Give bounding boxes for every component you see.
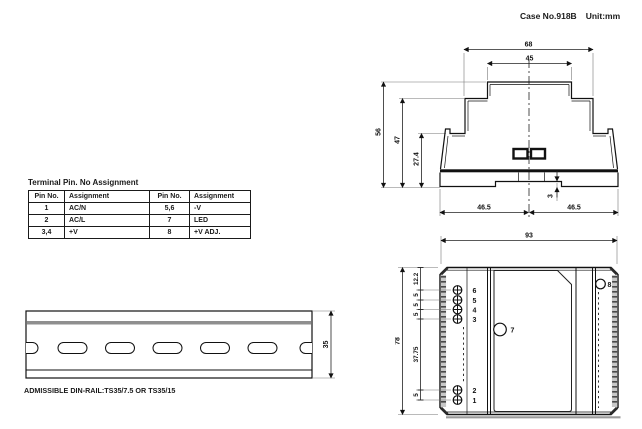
rail-caption: ADMISSIBLE DIN-RAIL:TS35/7.5 OR TS35/15 [24, 386, 175, 395]
col-header-assignment-1: Assignment [65, 191, 150, 203]
pin-label-4: 4 [473, 307, 477, 314]
led-label: 7 [511, 328, 515, 335]
cell-pin: 1 [29, 203, 65, 215]
screw-terminal [453, 314, 462, 323]
case-number-label: Case No.918B [520, 11, 577, 21]
cell-assignment: LED [190, 215, 251, 227]
dim-chain-5b: 5 [413, 303, 420, 307]
cell-pin: 5,6 [150, 203, 190, 215]
led-indicator [494, 323, 507, 336]
pin-table-block: Terminal Pin. No Assignment Pin No. Assi… [28, 178, 251, 239]
adj-label: 8 [608, 282, 612, 289]
pin-table-row: 1 AC/N 5,6 -V [29, 203, 251, 215]
dim-base-left: 46.5 [477, 205, 491, 212]
dim-chain-5c: 5 [413, 312, 420, 316]
dim-chain-37-75: 37.75 [413, 346, 420, 362]
pin-label-6: 6 [473, 288, 477, 295]
adj-potentiometer [596, 279, 606, 289]
rail-half-slot-right [300, 343, 312, 354]
pin-table-row: 3,4 +V 8 +V ADJ. [29, 227, 251, 239]
top-width-dimension: 93 [441, 233, 617, 265]
cell-assignment: +V [65, 227, 150, 239]
label-panel [494, 271, 572, 412]
pin-label-3: 3 [473, 317, 477, 324]
dim-chain-5a: 5 [413, 293, 420, 297]
cell-assignment: AC/N [65, 203, 150, 215]
cell-assignment: -V [190, 203, 251, 215]
pin-label-1: 1 [473, 398, 477, 405]
din-rail-drawing: 35 [10, 303, 345, 383]
pin-table-title: Terminal Pin. No Assignment [28, 178, 251, 187]
screw-terminal [453, 395, 462, 404]
cell-assignment: +V ADJ. [190, 227, 251, 239]
rail-slots [26, 343, 312, 354]
screw-terminal [453, 285, 462, 294]
col-header-assignment-2: Assignment [190, 191, 251, 203]
cell-pin: 3,4 [29, 227, 65, 239]
cell-pin: 8 [150, 227, 190, 239]
drawing-sheet: Case No.918B Unit:mm [0, 0, 642, 429]
dim-base-right: 46.5 [567, 205, 581, 212]
din-rail-body [26, 311, 312, 378]
cell-assignment: AC/L [65, 215, 150, 227]
dim-rail-notch: 3 [548, 194, 555, 198]
dim-total-height: 56 [376, 128, 383, 136]
rail-dimension: 35 [313, 311, 335, 378]
dim-upper-height: 47 [395, 136, 402, 144]
pin-label-2: 2 [473, 388, 477, 395]
dim-top-width: 45 [526, 56, 534, 63]
dim-body-width: 93 [525, 233, 533, 240]
cell-pin: 7 [150, 215, 190, 227]
col-header-pin-no-1: Pin No. [29, 191, 65, 203]
dim-chain-5d: 5 [413, 393, 420, 397]
screw-terminal [453, 385, 462, 394]
screw-terminal [453, 305, 462, 314]
screw-terminal [453, 295, 462, 304]
top-body [440, 268, 621, 418]
dim-body-height: 78 [395, 337, 402, 345]
pin-label-5: 5 [473, 298, 477, 305]
dim-lower-height: 27.4 [414, 152, 421, 166]
cell-pin: 2 [29, 215, 65, 227]
sheet-header: Case No.918B Unit:mm [520, 11, 620, 21]
unit-label: Unit:mm [586, 11, 620, 21]
rail-top-edge-band [27, 321, 311, 325]
top-view-drawing: 93 [395, 228, 642, 426]
rail-half-slot-left [26, 343, 38, 354]
front-extension-lines [381, 53, 618, 216]
dim-rail-height: 35 [323, 341, 330, 349]
pin-table-header-row: Pin No. Assignment Pin No. Assignment [29, 191, 251, 203]
front-view-drawing: 68 45 56 47 27.4 46.5 46.5 3 [375, 40, 642, 220]
pin-table-row: 2 AC/L 7 LED [29, 215, 251, 227]
dim-chain-12-2: 12.2 [413, 272, 420, 285]
col-header-pin-no-2: Pin No. [150, 191, 190, 203]
dim-outer-width: 68 [525, 42, 533, 49]
pin-table: Pin No. Assignment Pin No. Assignment 1 … [28, 190, 251, 239]
